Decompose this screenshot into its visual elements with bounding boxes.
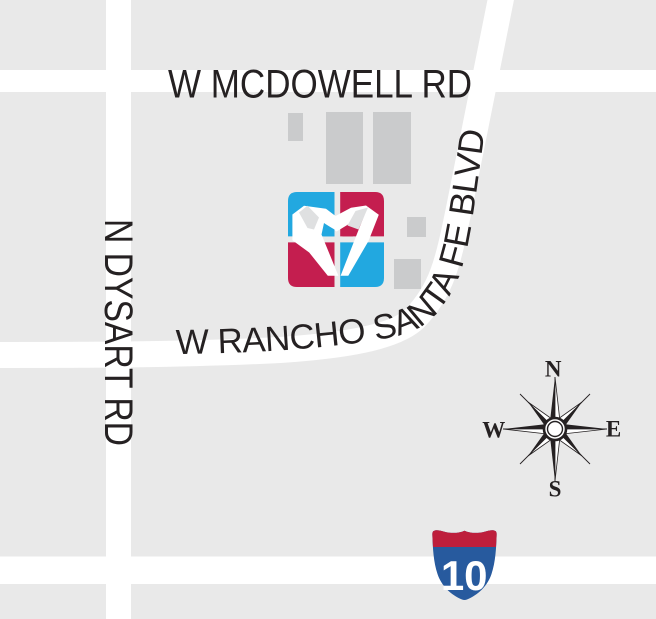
svg-text:W: W bbox=[482, 418, 505, 443]
svg-text:N: N bbox=[545, 357, 562, 382]
svg-text:E: E bbox=[606, 416, 621, 441]
svg-text:10: 10 bbox=[441, 552, 488, 599]
svg-text:W MCDOWELL RD: W MCDOWELL RD bbox=[168, 62, 472, 106]
svg-text:N DYSART RD: N DYSART RD bbox=[96, 219, 140, 446]
svg-text:S: S bbox=[549, 477, 562, 502]
